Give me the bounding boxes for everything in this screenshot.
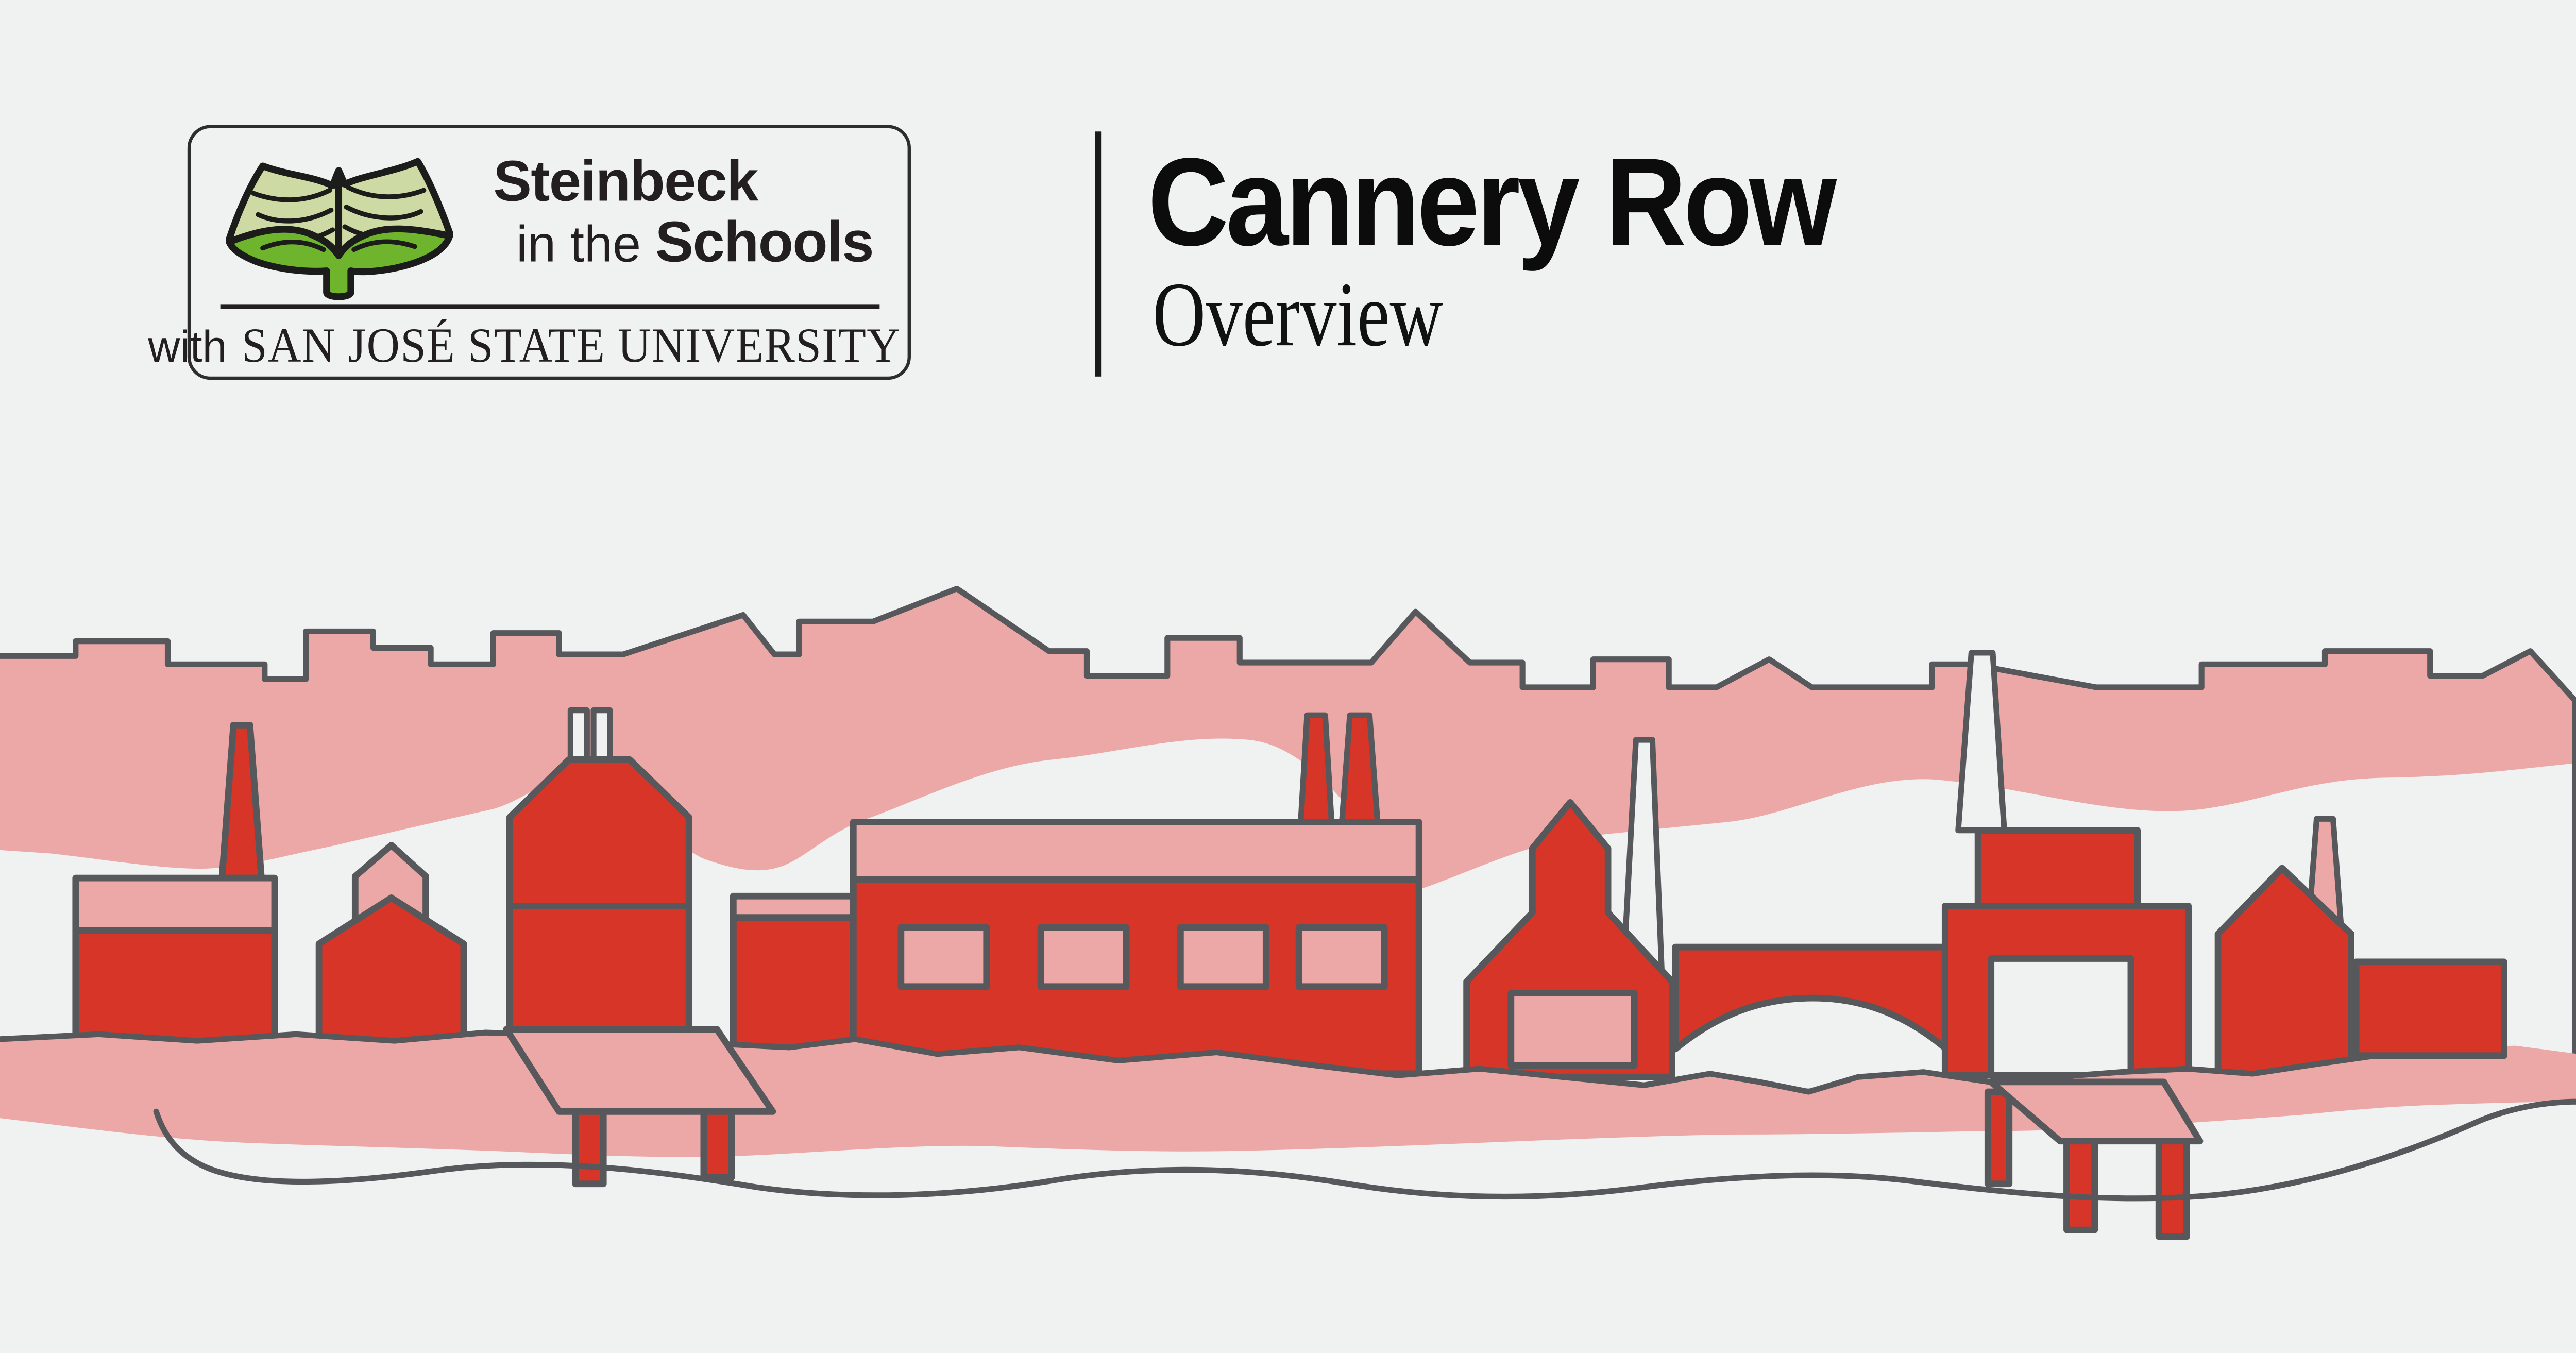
open-book-icon: [210, 145, 467, 306]
logo-divider: [221, 304, 880, 308]
logo-line2-bold: Schools: [655, 210, 873, 274]
title-divider-bar: [1095, 131, 1100, 377]
title-card: Steinbeck in the Schools with SAN JOSÉ S…: [0, 0, 2576, 1353]
right-low-warehouse: [2356, 962, 2504, 1056]
long-cannery-building: [853, 822, 1419, 1074]
logo-tagline: with SAN JOSÉ STATE UNIVERSITY: [191, 319, 907, 375]
logo-wordmark-line1: Steinbeck: [493, 149, 757, 215]
crossover-bridge: [1675, 947, 1950, 1088]
tall-cannery-building: [510, 759, 689, 1069]
logo-wordmark-line2: in the Schools: [516, 210, 873, 276]
page-subtitle: Overview: [1153, 269, 1443, 362]
right-pier: [1988, 1082, 2200, 1237]
right-cannery-building: [1945, 831, 2188, 1076]
tagline-with: with: [148, 322, 227, 373]
tagline-university: SAN JOSÉ STATE UNIVERSITY: [242, 319, 901, 375]
page-title: Cannery Row: [1148, 141, 1834, 266]
warehouse-door: [1991, 959, 2131, 1076]
steinbeck-logo-card: Steinbeck in the Schools with SAN JOSÉ S…: [188, 125, 911, 380]
logo-line2-prefix: in the: [516, 215, 641, 273]
